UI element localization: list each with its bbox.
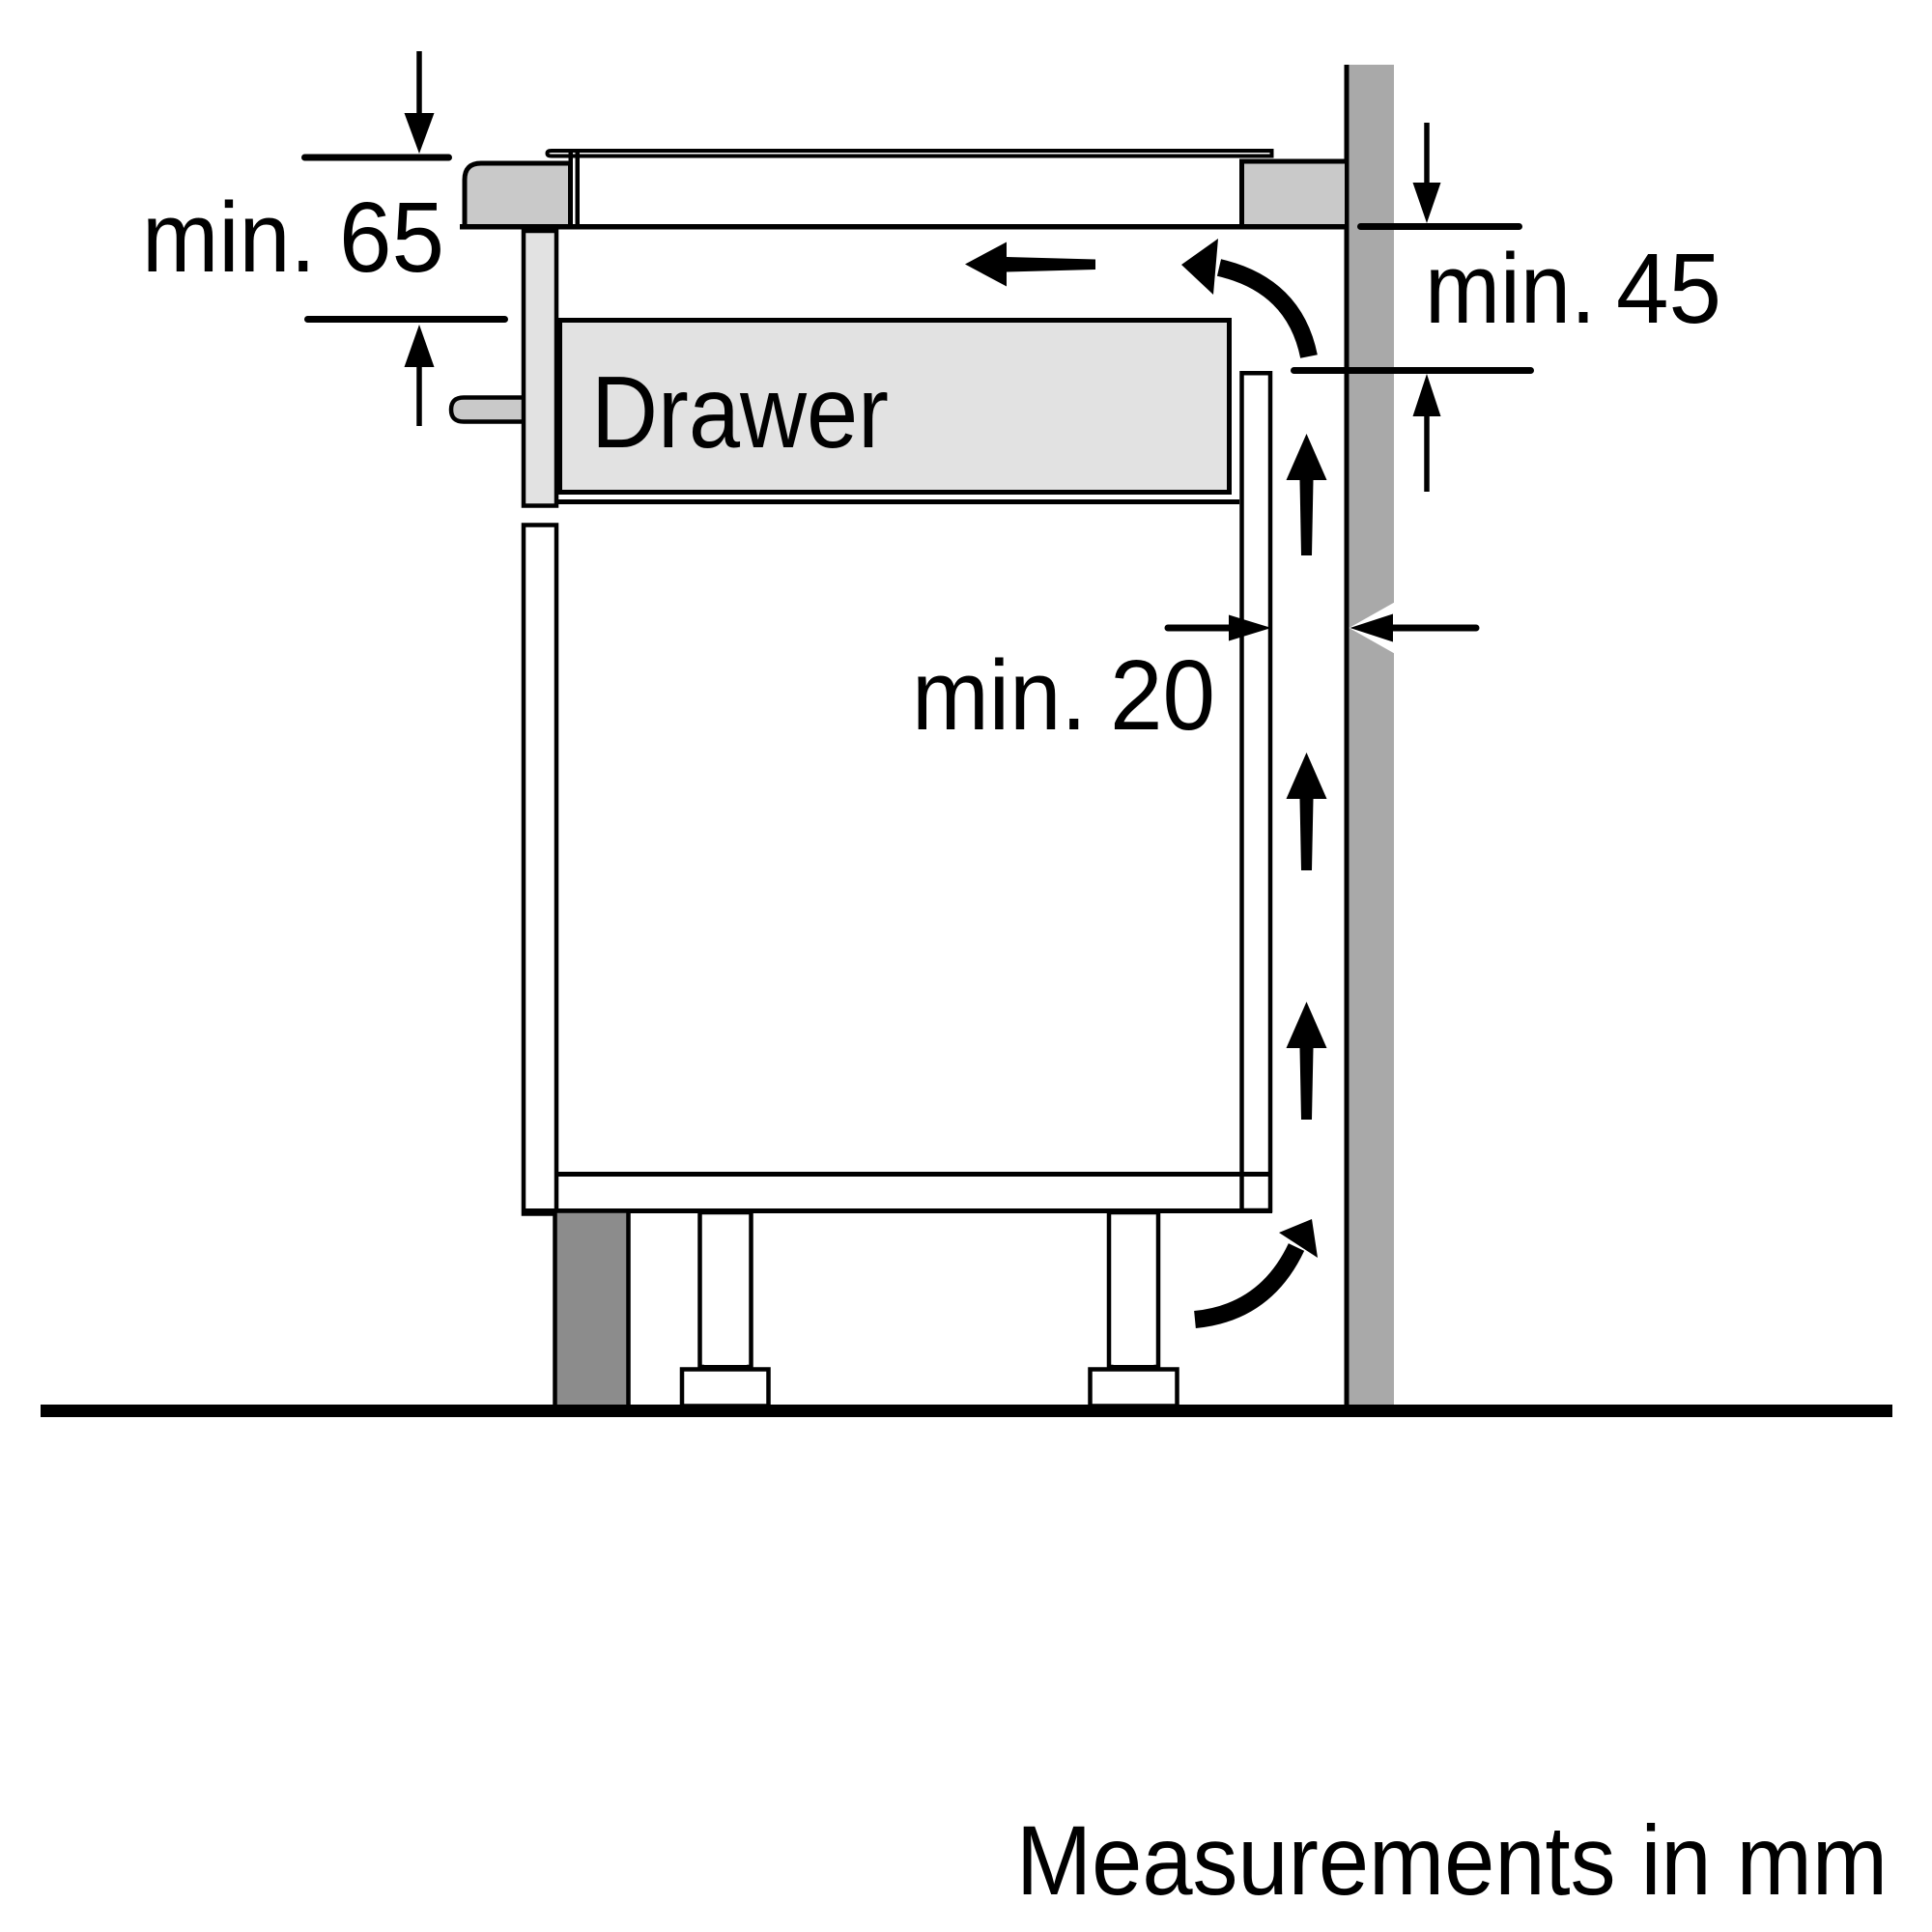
svg-text:65: 65 [339, 182, 444, 293]
svg-text:min.: min. [1425, 233, 1596, 344]
svg-text:20: 20 [1110, 639, 1215, 751]
svg-text:Drawer: Drawer [591, 355, 889, 469]
svg-text:45: 45 [1616, 233, 1721, 344]
svg-text:min.: min. [912, 639, 1087, 751]
svg-text:min.: min. [142, 182, 316, 293]
svg-text:Measurements in mm: Measurements in mm [1016, 1805, 1888, 1916]
